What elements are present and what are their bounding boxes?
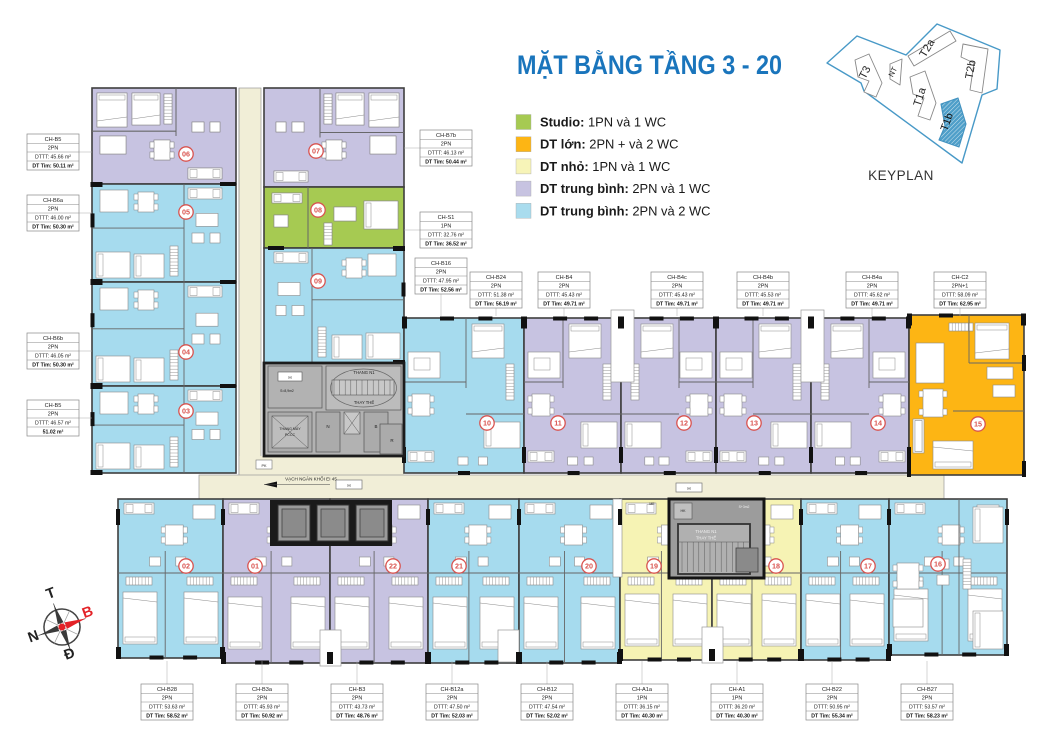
svg-text:CH-B5: CH-B5 [45, 403, 62, 409]
svg-text:DTTT: 32.76 m²: DTTT: 32.76 m² [428, 233, 464, 239]
svg-text:16: 16 [934, 560, 942, 569]
svg-text:2PN+1: 2PN+1 [952, 284, 969, 290]
svg-text:DT Tim: 52.56 m²: DT Tim: 52.56 m² [420, 288, 462, 294]
svg-text:Studio: 1PN và 1 WC: Studio: 1PN và 1 WC [540, 115, 666, 130]
svg-text:N: N [326, 424, 329, 429]
svg-text:HK: HK [681, 509, 687, 513]
svg-text:20: 20 [585, 562, 593, 571]
svg-text:CH-B22: CH-B22 [822, 687, 842, 693]
svg-text:DTTT: 58.09 m²: DTTT: 58.09 m² [942, 293, 978, 299]
svg-text:CH-B12: CH-B12 [537, 687, 557, 693]
svg-text:CH-A1a: CH-A1a [632, 687, 653, 693]
svg-text:2PN: 2PN [672, 284, 683, 290]
svg-text:2PN: 2PN [441, 142, 452, 148]
svg-text:DTTT: 45.93 m²: DTTT: 45.93 m² [244, 705, 280, 711]
svg-text:DT Tim: 48.76 m²: DT Tim: 48.76 m² [336, 714, 378, 720]
svg-text:THANG N1: THANG N1 [353, 370, 375, 375]
svg-text:CH-B4: CH-B4 [556, 275, 573, 281]
svg-text:DT Tim: 50.30 m²: DT Tim: 50.30 m² [32, 225, 74, 231]
svg-text:DTTT: 45.62 m²: DTTT: 45.62 m² [854, 293, 890, 299]
svg-text:DTTT: 51.38 m²: DTTT: 51.38 m² [478, 293, 514, 299]
svg-text:03: 03 [182, 407, 190, 416]
svg-text:DTTT: 47.50 m²: DTTT: 47.50 m² [434, 705, 470, 711]
svg-text:DT Tim: 40.30 m²: DT Tim: 40.30 m² [621, 714, 663, 720]
svg-text:2PN: 2PN [922, 696, 933, 702]
svg-text:CH-B24: CH-B24 [486, 275, 506, 281]
svg-text:H: H [347, 483, 350, 488]
svg-text:B: B [374, 424, 377, 429]
svg-text:DT Tim: 49.71 m²: DT Tim: 49.71 m² [656, 302, 698, 308]
svg-text:MẶT BẰNG TẦNG 3 - 20: MẶT BẰNG TẦNG 3 - 20 [517, 50, 782, 80]
svg-text:DTTT: 53.57 m²: DTTT: 53.57 m² [909, 705, 945, 711]
svg-text:18: 18 [772, 562, 780, 571]
svg-text:DT Tim: 62.95 m²: DT Tim: 62.95 m² [939, 302, 981, 308]
svg-text:DT nhỏ: 1PN và 1 WC: DT nhỏ: 1PN và 1 WC [540, 159, 670, 174]
svg-text:PK: PK [261, 464, 267, 468]
svg-text:2PN: 2PN [827, 696, 838, 702]
svg-text:DT Tim: 49.71 m²: DT Tim: 49.71 m² [742, 302, 784, 308]
svg-text:2PN: 2PN [447, 696, 458, 702]
svg-text:12: 12 [680, 419, 688, 428]
svg-text:KEYPLAN: KEYPLAN [868, 168, 934, 183]
svg-text:THANG MÁY: THANG MÁY [279, 427, 301, 431]
svg-text:DTTT: 45.43 m²: DTTT: 45.43 m² [546, 293, 582, 299]
svg-text:CH-B6a: CH-B6a [43, 198, 64, 204]
svg-text:17: 17 [864, 562, 872, 571]
svg-text:08: 08 [314, 206, 322, 215]
svg-text:DT Tim: 50.11 m²: DT Tim: 50.11 m² [32, 164, 73, 170]
svg-text:S+3m2: S+3m2 [739, 505, 750, 509]
svg-text:DT Tim: 50.30 m²: DT Tim: 50.30 m² [32, 363, 74, 369]
svg-text:10: 10 [483, 419, 491, 428]
svg-text:THAY THẾ: THAY THẾ [696, 536, 716, 541]
svg-text:DTTT: 46.05 m²: DTTT: 46.05 m² [35, 354, 71, 360]
svg-text:DTTT: 45.53 m²: DTTT: 45.53 m² [745, 293, 781, 299]
svg-text:DT Tim: 36.52 m²: DT Tim: 36.52 m² [425, 242, 467, 248]
svg-text:1PN: 1PN [441, 224, 452, 230]
svg-text:DT Tim: 52.02 m²: DT Tim: 52.02 m² [526, 714, 568, 720]
svg-text:DT Tim: 58.52 m²: DT Tim: 58.52 m² [146, 714, 188, 720]
svg-text:2PN: 2PN [48, 345, 59, 351]
svg-text:2PN: 2PN [48, 412, 59, 418]
svg-text:CH-A1: CH-A1 [729, 687, 746, 693]
svg-text:DTTT: 47.95 m²: DTTT: 47.95 m² [423, 279, 459, 285]
svg-text:DTTT: 43.73 m²: DTTT: 43.73 m² [339, 705, 375, 711]
svg-text:09: 09 [314, 277, 322, 286]
svg-text:CH-B4c: CH-B4c [667, 275, 687, 281]
svg-text:2PN: 2PN [257, 696, 268, 702]
svg-text:THAY THẾ: THAY THẾ [354, 400, 374, 405]
svg-text:CH-B3: CH-B3 [349, 687, 366, 693]
svg-text:CH-B27: CH-B27 [917, 687, 937, 693]
svg-text:DT trung bình: 2PN và 2 WC: DT trung bình: 2PN và 2 WC [540, 203, 710, 218]
svg-text:DTTT: 46.13 m²: DTTT: 46.13 m² [428, 151, 464, 157]
svg-text:2PN: 2PN [559, 284, 570, 290]
svg-text:2PN: 2PN [48, 207, 59, 213]
svg-text:MR: MR [649, 502, 655, 506]
svg-text:04: 04 [182, 348, 190, 357]
svg-text:2PN: 2PN [758, 284, 769, 290]
svg-text:DT Tim: 50.44 m²: DT Tim: 50.44 m² [425, 160, 467, 166]
svg-text:DT Tim: 58.23 m²: DT Tim: 58.23 m² [906, 714, 948, 720]
svg-text:CH-B3a: CH-B3a [252, 687, 273, 693]
svg-text:H: H [687, 486, 690, 491]
svg-text:CH-B4b: CH-B4b [753, 275, 773, 281]
svg-text:19: 19 [650, 562, 658, 571]
svg-text:1PN: 1PN [637, 696, 648, 702]
svg-text:1PN: 1PN [732, 696, 743, 702]
svg-text:DTTT: 50.95 m²: DTTT: 50.95 m² [814, 705, 850, 711]
svg-text:THANG N1: THANG N1 [695, 529, 717, 534]
svg-text:DT Tim: 49.71 m²: DT Tim: 49.71 m² [851, 302, 893, 308]
svg-text:DT Tim: 56.19 m²: DT Tim: 56.19 m² [475, 302, 517, 308]
svg-text:DTTT: 47.54 m²: DTTT: 47.54 m² [529, 705, 565, 711]
svg-text:DTTT: 45.66 m²: DTTT: 45.66 m² [35, 155, 71, 161]
svg-text:DTTT: 46.57 m²: DTTT: 46.57 m² [35, 421, 71, 427]
svg-text:CH-B16: CH-B16 [431, 261, 451, 267]
svg-text:DTTT: 53.63 m²: DTTT: 53.63 m² [149, 705, 185, 711]
svg-text:S=8,9m2: S=8,9m2 [280, 389, 294, 393]
svg-text:2PN: 2PN [162, 696, 173, 702]
svg-text:VẠCH NGĂN KHỐI EI 45: VẠCH NGĂN KHỐI EI 45 [285, 476, 337, 482]
svg-text:2PN: 2PN [48, 146, 59, 152]
svg-text:21: 21 [455, 562, 463, 571]
svg-text:01: 01 [251, 562, 259, 571]
svg-text:DT Tim: 55.34 m²: DT Tim: 55.34 m² [811, 714, 853, 720]
svg-text:14: 14 [874, 419, 882, 428]
svg-text:PCCC: PCCC [285, 433, 296, 437]
svg-text:CH-C2: CH-C2 [951, 275, 968, 281]
svg-text:DTTT: 45.43 m²: DTTT: 45.43 m² [659, 293, 695, 299]
svg-text:11: 11 [554, 419, 562, 428]
svg-text:DT Tim: 49.71 m²: DT Tim: 49.71 m² [543, 302, 585, 308]
svg-text:CH-B12a: CH-B12a [440, 687, 464, 693]
svg-text:02: 02 [182, 562, 190, 571]
svg-text:15: 15 [974, 420, 982, 429]
svg-text:51.02 m²: 51.02 m² [43, 430, 64, 436]
svg-text:CH-B5: CH-B5 [45, 137, 62, 143]
svg-text:DT Tim: 52.03 m²: DT Tim: 52.03 m² [431, 714, 473, 720]
svg-text:DTTT: 46.00 m²: DTTT: 46.00 m² [35, 216, 71, 222]
svg-text:2PN: 2PN [352, 696, 363, 702]
svg-text:22: 22 [389, 562, 397, 571]
svg-text:06: 06 [182, 150, 190, 159]
svg-text:2PN: 2PN [867, 284, 878, 290]
svg-text:13: 13 [750, 419, 758, 428]
svg-text:CH-S1: CH-S1 [438, 215, 455, 221]
svg-text:2PN: 2PN [542, 696, 553, 702]
svg-text:CH-B6b: CH-B6b [43, 336, 63, 342]
svg-text:07: 07 [312, 147, 320, 156]
svg-text:DT trung bình: 2PN và 1 WC: DT trung bình: 2PN và 1 WC [540, 181, 710, 196]
svg-text:DT Tim: 40.30 m²: DT Tim: 40.30 m² [716, 714, 758, 720]
svg-text:CH-B7b: CH-B7b [436, 133, 456, 139]
svg-text:2PN: 2PN [491, 284, 502, 290]
svg-text:CH-B28: CH-B28 [157, 687, 177, 693]
svg-text:DT lớn: 2PN + và 2 WC: DT lớn: 2PN + và 2 WC [540, 137, 678, 152]
svg-text:DT Tim: 50.92 m²: DT Tim: 50.92 m² [241, 714, 283, 720]
svg-text:DTTT: 36.15 m²: DTTT: 36.15 m² [624, 705, 660, 711]
svg-text:DTTT: 36.20 m²: DTTT: 36.20 m² [719, 705, 755, 711]
svg-text:05: 05 [182, 208, 190, 217]
svg-text:2PN: 2PN [436, 270, 447, 276]
svg-text:H: H [288, 375, 291, 380]
svg-text:CH-B4a: CH-B4a [862, 275, 883, 281]
